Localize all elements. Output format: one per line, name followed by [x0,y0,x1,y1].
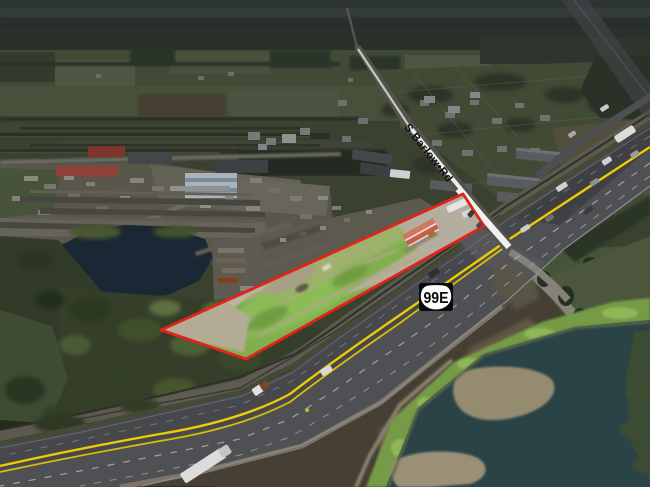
svg-text:99E: 99E [424,290,449,307]
